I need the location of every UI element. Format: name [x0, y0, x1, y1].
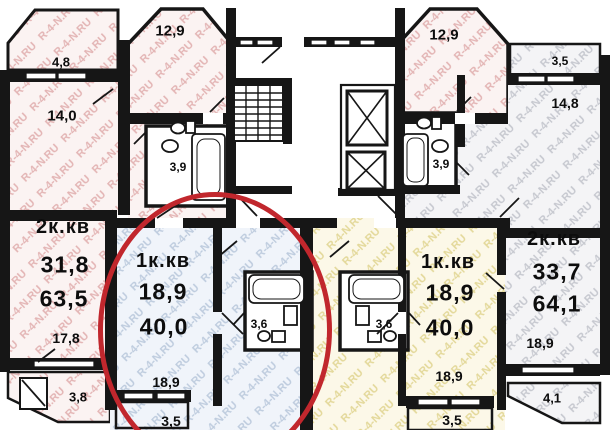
bathtub-inner	[197, 139, 220, 195]
door-gap	[236, 218, 260, 228]
floorplan-canvas: R-4-N.RU R-4-N.RU R-4-N.RU R-4-N.RU	[0, 0, 610, 430]
window	[311, 40, 327, 45]
sink-icon	[162, 140, 178, 152]
wall-segment	[300, 218, 313, 430]
sink-icon	[432, 140, 448, 152]
apt-right1k-type: 1к.кв	[421, 252, 475, 272]
apt-left2k-type: 2к.кв	[36, 217, 90, 237]
window	[26, 73, 56, 79]
wall-segment	[497, 228, 506, 275]
region-room-14-0	[8, 82, 120, 212]
room-12-9-left: 12,9	[155, 24, 184, 39]
window	[240, 40, 253, 45]
cabinet-icon	[284, 306, 297, 325]
wall-segment	[395, 218, 510, 228]
wall-segment	[105, 210, 117, 410]
window	[334, 40, 350, 45]
room-18-9-left1k: 18,9	[152, 375, 179, 389]
wall-segment	[226, 78, 292, 85]
apt-right1k-total: 40,0	[426, 317, 475, 340]
apt-left1k-type: 1к.кв	[136, 251, 190, 271]
toilet-tank	[186, 121, 195, 133]
room-balcony-3-8: 3,8	[69, 391, 87, 404]
door-gap	[455, 113, 475, 124]
bath-3-6-right: 3,6	[376, 318, 393, 330]
apt-left2k-living: 31,8	[41, 254, 90, 277]
apt-left2k-total: 63,5	[40, 288, 89, 311]
stairs	[234, 85, 283, 141]
room-17-8: 17,8	[52, 331, 79, 345]
cabinet-icon	[356, 306, 369, 325]
door-swing	[238, 196, 257, 216]
window	[547, 76, 574, 82]
room-18-9-right1k: 18,9	[435, 369, 462, 383]
wall-segment	[283, 80, 292, 144]
apt-right2k-type: 2к.кв	[527, 229, 581, 249]
toilet-icon	[384, 331, 396, 341]
apt-right1k-living: 18,9	[426, 282, 475, 305]
window	[518, 76, 545, 82]
toilet-icon	[417, 118, 431, 129]
window	[257, 40, 273, 45]
door-swing	[378, 196, 397, 215]
window	[124, 393, 153, 399]
room-12-9-right: 12,9	[429, 28, 458, 43]
apt-left1k-total: 40,0	[140, 316, 189, 339]
door-gap	[155, 218, 183, 228]
elevators	[341, 85, 395, 190]
door-gap	[203, 113, 223, 124]
bath-3-9-left: 3,9	[170, 161, 187, 173]
apt-left1k-living: 18,9	[139, 281, 188, 304]
apt-right2k-total: 64,1	[533, 293, 582, 316]
room-balcony-4-8: 4,8	[52, 56, 70, 69]
wall-segment	[118, 40, 130, 215]
wall-segment	[497, 292, 506, 410]
bathtub-inner	[253, 279, 300, 299]
door-gap	[282, 37, 304, 47]
room-18-9-right2k: 18,9	[526, 336, 553, 350]
window	[360, 40, 375, 45]
door-gap	[374, 218, 396, 228]
balcony-3-5-right: 3,5	[442, 413, 461, 427]
floorplan-drawing: R-4-N.RU R-4-N.RU R-4-N.RU R-4-N.RU	[0, 0, 610, 430]
wall-segment	[213, 334, 222, 406]
wall-segment	[398, 113, 508, 124]
toilet-tank	[272, 331, 285, 342]
balcony-4-1: 4,1	[543, 392, 561, 405]
wall-segment	[226, 186, 292, 194]
wall-segment	[600, 55, 610, 375]
door-swing	[262, 47, 280, 63]
window	[418, 399, 448, 405]
room-14-8: 14,8	[551, 96, 578, 110]
window	[58, 73, 86, 79]
window	[157, 393, 185, 399]
wall-segment	[213, 228, 222, 312]
apt-right2k-living: 33,7	[533, 261, 582, 284]
window	[522, 367, 574, 373]
toilet-icon	[171, 123, 185, 134]
balcony-3-5-top: 3,5	[552, 55, 569, 67]
toilet-tank	[432, 117, 441, 129]
balcony-3-5-left: 3,5	[161, 414, 180, 428]
room-14-0: 14,0	[47, 109, 76, 124]
bath-3-9-right: 3,9	[433, 158, 450, 170]
bathtub-inner	[353, 279, 400, 299]
bath-3-6-left: 3,6	[251, 318, 268, 330]
toilet-icon	[258, 331, 270, 341]
window	[451, 399, 480, 405]
wall-segment	[398, 334, 406, 406]
region-bay-12-9-right	[398, 9, 508, 118]
bathtub-inner	[407, 138, 424, 182]
window	[34, 361, 94, 367]
